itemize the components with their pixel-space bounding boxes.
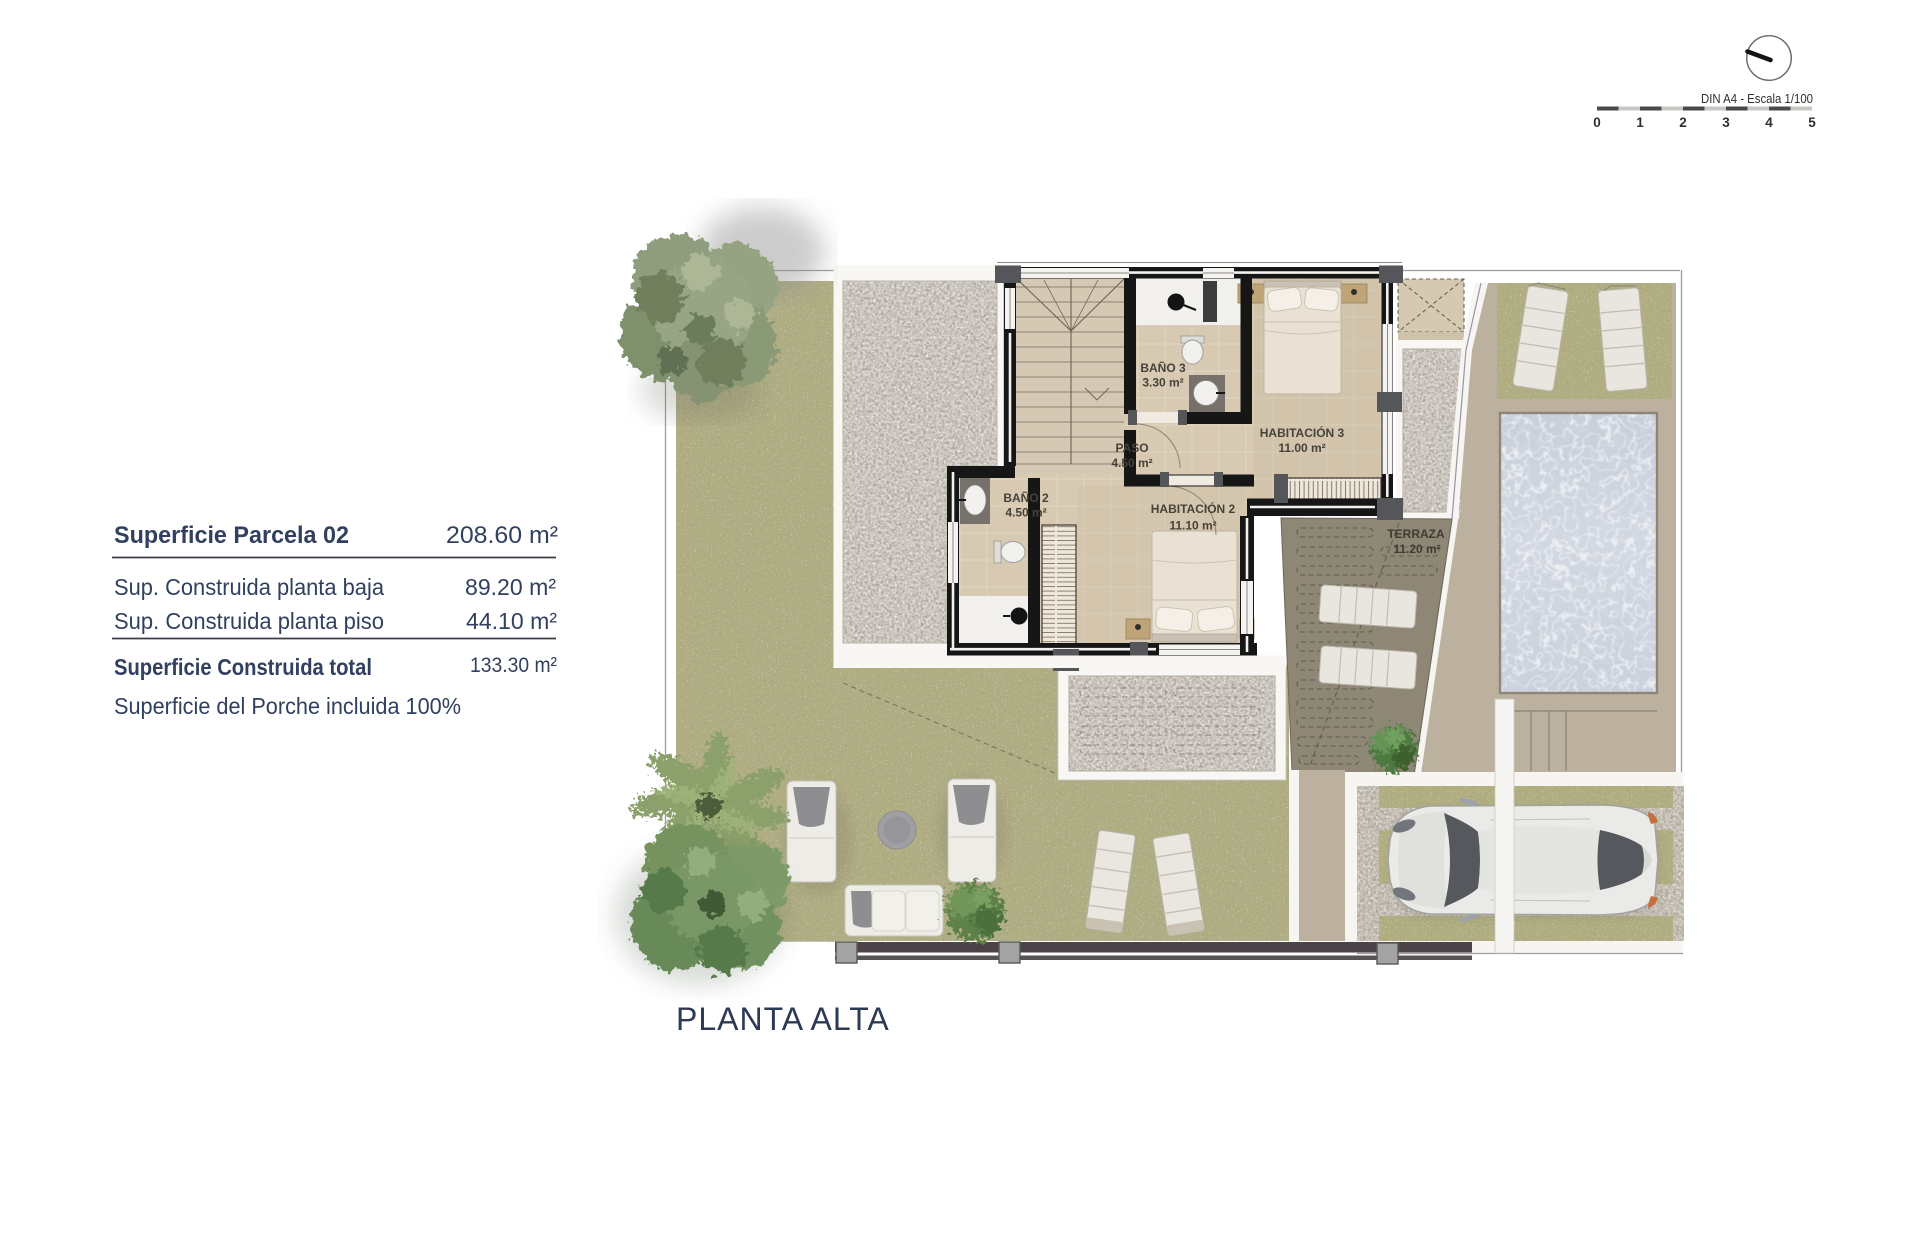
svg-text:1: 1 xyxy=(1636,115,1644,130)
svg-text:Superficie Construida total: Superficie Construida total xyxy=(114,654,372,680)
svg-text:133.30 m²: 133.30 m² xyxy=(470,654,557,677)
svg-text:11.10 m²: 11.10 m² xyxy=(1169,519,1216,533)
svg-text:PASO: PASO xyxy=(1115,441,1148,455)
svg-text:HABITACIÓN 3: HABITACIÓN 3 xyxy=(1260,425,1345,440)
svg-text:Sup. Construida planta baja: Sup. Construida planta baja xyxy=(114,574,384,600)
svg-text:89.20 m²: 89.20 m² xyxy=(465,574,556,600)
svg-text:Sup. Construida planta piso: Sup. Construida planta piso xyxy=(114,608,384,634)
svg-text:Superficie del Porche incluida: Superficie del Porche incluida 100% xyxy=(114,693,461,719)
svg-text:DIN A4 - Escala 1/100: DIN A4 - Escala 1/100 xyxy=(1701,91,1813,106)
svg-text:4.50 m²: 4.50 m² xyxy=(1111,456,1152,470)
svg-text:208.60 m²: 208.60 m² xyxy=(446,522,558,549)
svg-text:11.00 m²: 11.00 m² xyxy=(1278,441,1325,455)
svg-text:0: 0 xyxy=(1593,115,1601,130)
svg-text:2: 2 xyxy=(1679,115,1687,130)
svg-text:BAÑO 2: BAÑO 2 xyxy=(1003,490,1049,505)
svg-text:TERRAZA: TERRAZA xyxy=(1387,527,1445,541)
svg-text:BAÑO 3: BAÑO 3 xyxy=(1140,360,1186,375)
svg-text:5: 5 xyxy=(1808,115,1816,130)
svg-text:11.20 m²: 11.20 m² xyxy=(1393,542,1440,556)
svg-text:4: 4 xyxy=(1765,115,1773,130)
svg-text:PLANTA ALTA: PLANTA ALTA xyxy=(676,1001,890,1037)
svg-text:3.30 m²: 3.30 m² xyxy=(1142,376,1183,390)
svg-text:44.10 m²: 44.10 m² xyxy=(466,608,557,634)
svg-text:Superficie Parcela 02: Superficie Parcela 02 xyxy=(114,522,349,549)
svg-text:3: 3 xyxy=(1722,115,1730,130)
svg-text:4.50 m²: 4.50 m² xyxy=(1005,506,1046,520)
svg-text:HABITACIÓN 2: HABITACIÓN 2 xyxy=(1151,501,1236,516)
